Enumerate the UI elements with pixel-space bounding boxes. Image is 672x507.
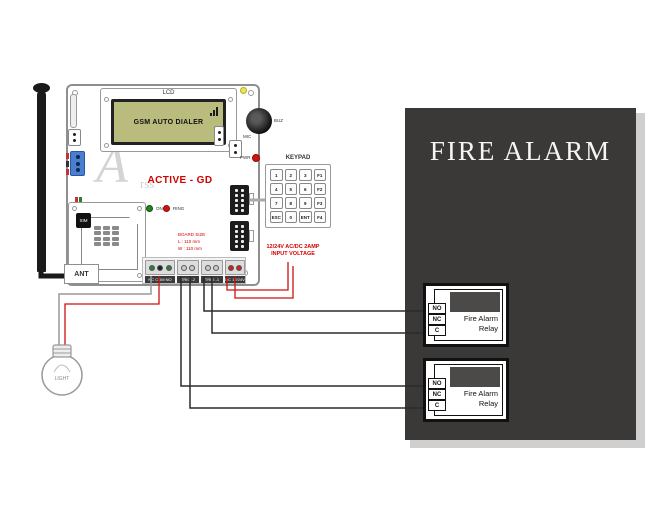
keypad-label: KEYPAD [265,155,331,161]
board-size-line: L : 110 mm [178,239,205,246]
keypad-key: 0 [285,211,298,223]
wire-trig2-relay2-no [181,276,426,386]
relay-coil [450,292,500,312]
screw-icon [137,206,142,211]
relay-name: Fire Alarm Relay [464,314,498,334]
ring-led [163,205,170,212]
terminal-label: TRIG -2 [177,276,199,283]
keypad-key: 5 [285,183,298,195]
status-led-yellow [240,87,247,94]
panel-side-edge [636,113,645,444]
on-led [146,205,153,212]
keypad-key: 9 [299,197,312,209]
power-terminal-block [70,151,85,176]
keypad-key: F2 [314,183,327,195]
fire-alarm-relay-1: Fire Alarm Relay NO NC C [423,283,509,347]
screw-icon [248,90,254,96]
fire-alarm-title: FIRE ALARM [405,136,636,167]
dc-power-terminal [225,260,245,275]
edge-connector [68,129,81,146]
signal-bars-icon [210,107,220,116]
relay-name-line: Fire Alarm [464,389,498,399]
board-size-note: BOARD SIZE L : 110 mm W : 110 mm [178,232,205,252]
sim-chip-icon: SIM [76,213,91,228]
terminal-label: NC COM NO [145,276,175,283]
relay-out-terminal [145,260,175,275]
keypad-key: 4 [270,183,283,195]
antenna-icon [37,91,46,272]
relay-terminal-nc: NC [428,389,446,400]
keypad-key: ESC [270,211,283,223]
relay-coil [450,367,500,387]
ant-label: ANT [64,264,99,284]
wire-light-neutral [59,276,151,346]
relay-terminal-no: NO [428,378,446,389]
buzzer-icon [246,108,272,134]
board-size-line: BOARD SIZE [178,232,205,239]
model-label: ACTIVE - GD [140,175,220,186]
board-size-line: W : 110 mm [178,246,205,253]
on-led-label: ON [156,206,163,211]
input-voltage-line: INPUT VOLTAGE [252,251,334,258]
screw-icon [228,97,233,102]
connector-tab [249,230,254,242]
trig1-terminal [201,260,223,275]
wire-light-live [65,276,159,346]
keypad-key: F1 [314,169,327,181]
keypad-key: 3 [299,169,312,181]
pwr-led [252,154,260,162]
input-voltage-line: 12/24V AC/DC 2AMP [252,244,334,251]
relay-name-line: Relay [464,399,498,409]
aux-header-connector [230,221,249,251]
input-voltage-note: 12/24V AC/DC 2AMP INPUT VOLTAGE [252,244,334,259]
relay-terminal-c: C [428,325,446,336]
keypad-key: 2 [285,169,298,181]
keypad-key: 8 [285,197,298,209]
keypad-key: 1 [270,169,283,181]
wire-trig2-relay2-c [190,276,426,408]
screw-icon [72,206,77,211]
trig2-terminal [177,260,199,275]
wire-mark [66,161,69,167]
sim-contact-pads [94,226,119,246]
buzzer-label: BUZ [274,118,283,123]
wire-mark [66,153,69,159]
relay-terminal-nc: NC [428,314,446,325]
keypad-key: 7 [270,197,283,209]
light-label: LIGHT [55,376,70,382]
relay-terminal-c: C [428,400,446,411]
screw-icon [104,97,109,102]
screw-icon [104,143,109,148]
lcd-screen-text: GSM AUTO DIALER [134,119,204,126]
panel-bottom-edge [410,440,645,448]
fire-alarm-relay-2: Fire Alarm Relay NO NC C [423,358,509,422]
terminal-label: DC 12/24V [225,276,245,283]
edge-slot [70,94,77,128]
connector [214,126,224,146]
mic-label: MIC [243,134,251,139]
terminal-strip: NC COM NO TRIG -2 TRIG -1 DC 12/24V [142,257,246,284]
lcd-screen: GSM AUTO DIALER [111,99,226,145]
keypad-key: 6 [299,183,312,195]
pwr-label: PWR [240,155,251,160]
ring-led-label: RING [173,206,184,211]
relay-name-line: Relay [464,324,498,334]
wire-mark [66,169,69,175]
keypad: 1 2 3 F1 4 5 6 F2 7 8 9 F3 ESC 0 ENT F4 [265,164,331,228]
connector-tab [249,193,254,205]
keypad-key: ENT [299,211,312,223]
keypad-key: F4 [314,211,327,223]
wiring-diagram: FIRE ALARM LCD GSM AUTO DIALER BUZ MIC P… [0,0,672,507]
light-bulb-icon: LIGHT [42,345,82,395]
keypad-header-connector [230,185,249,215]
keypad-key: F3 [314,197,327,209]
lcd-label: LCD [101,90,236,96]
terminal-label: TRIG -1 [201,276,223,283]
relay-name: Fire Alarm Relay [464,389,498,409]
relay-terminal-no: NO [428,303,446,314]
relay-name-line: Fire Alarm [464,314,498,324]
